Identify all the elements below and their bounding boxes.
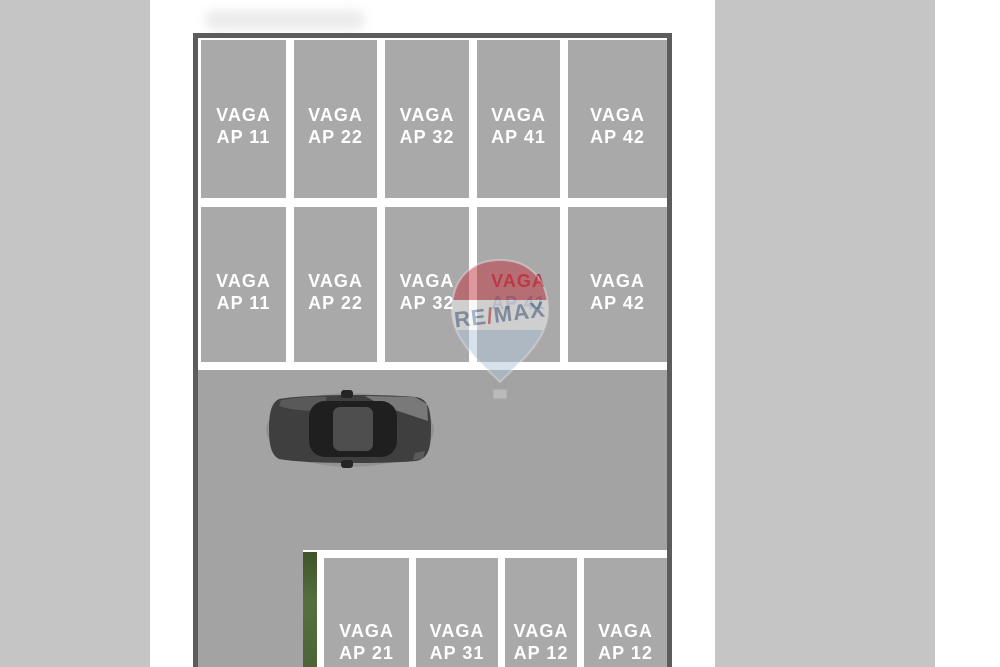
parking-stall: VAGA AP 32 bbox=[385, 40, 469, 198]
stall-label: AP 42 bbox=[590, 127, 645, 147]
hedge-strip bbox=[303, 552, 317, 667]
parking-stall: VAGA AP 11 bbox=[201, 40, 286, 198]
stall-label: AP 22 bbox=[308, 127, 363, 147]
stall-label: VAGA bbox=[590, 271, 645, 291]
parking-stall-under-watermark: VAGA AP 41 bbox=[477, 207, 560, 362]
parking-stall: VAGA AP 11 bbox=[201, 207, 286, 362]
stall-label: AP 32 bbox=[400, 127, 455, 147]
stall-label: VAGA bbox=[514, 621, 569, 641]
stall-label: AP 31 bbox=[430, 643, 485, 663]
stall-label: VAGA bbox=[308, 271, 363, 291]
stall-label: AP 41 bbox=[491, 127, 546, 147]
stall-grid-upper: VAGA AP 11 VAGA AP 22 VAGA AP 32 VAGA AP… bbox=[198, 38, 667, 370]
parking-stall: VAGA AP 42 bbox=[568, 40, 667, 198]
parking-stall: VAGA AP 22 bbox=[294, 207, 377, 362]
parking-stall: VAGA AP 42 bbox=[568, 207, 667, 362]
stall-label: AP 22 bbox=[308, 293, 363, 313]
stall-label: AP 42 bbox=[590, 293, 645, 313]
stall-label: VAGA bbox=[339, 621, 394, 641]
stall-label: VAGA bbox=[308, 105, 363, 125]
stall-grid-bottom: VAGA AP 21 VAGA AP 31 VAGA AP 12 VAGA AP… bbox=[303, 550, 667, 667]
stall-label: AP 21 bbox=[339, 643, 394, 663]
stall-label: AP 41 bbox=[491, 293, 546, 313]
parking-stall: VAGA AP 21 bbox=[324, 558, 409, 667]
stall-label: VAGA bbox=[216, 105, 271, 125]
stall-label: VAGA bbox=[491, 105, 546, 125]
stall-label: AP 11 bbox=[217, 293, 271, 313]
top-smudge-artifact bbox=[205, 10, 365, 30]
parking-stall: VAGA AP 31 bbox=[416, 558, 498, 667]
stall-label: AP 11 bbox=[217, 127, 271, 147]
stall-label: VAGA bbox=[400, 105, 455, 125]
left-gray-margin bbox=[0, 0, 150, 667]
car-top-view bbox=[265, 389, 435, 469]
stall-label: VAGA bbox=[491, 271, 546, 291]
parking-stall: VAGA AP 32 bbox=[385, 207, 469, 362]
stall-label: VAGA bbox=[598, 621, 653, 641]
right-gray-margin bbox=[715, 0, 935, 667]
parking-floorplan-image: VAGA AP 11 VAGA AP 22 VAGA AP 32 VAGA AP… bbox=[0, 0, 1000, 667]
parking-stall: VAGA AP 22 bbox=[294, 40, 377, 198]
stall-label: AP 12 bbox=[598, 643, 653, 663]
stall-row-middle: VAGA AP 11 VAGA AP 22 VAGA AP 32 VAGA AP… bbox=[201, 207, 667, 362]
parking-stall: VAGA AP 12 bbox=[584, 558, 667, 667]
stall-row-top: VAGA AP 11 VAGA AP 22 VAGA AP 32 VAGA AP… bbox=[201, 40, 667, 198]
stall-label: AP 12 bbox=[514, 643, 569, 663]
parking-lot: VAGA AP 11 VAGA AP 22 VAGA AP 32 VAGA AP… bbox=[193, 33, 672, 667]
parking-stall: VAGA AP 12 bbox=[505, 558, 577, 667]
stall-label: VAGA bbox=[590, 105, 645, 125]
stall-label: AP 32 bbox=[400, 293, 455, 313]
stall-label: VAGA bbox=[400, 271, 455, 291]
parking-stall: VAGA AP 41 bbox=[477, 40, 560, 198]
stall-label: VAGA bbox=[216, 271, 271, 291]
stall-label: VAGA bbox=[430, 621, 485, 641]
